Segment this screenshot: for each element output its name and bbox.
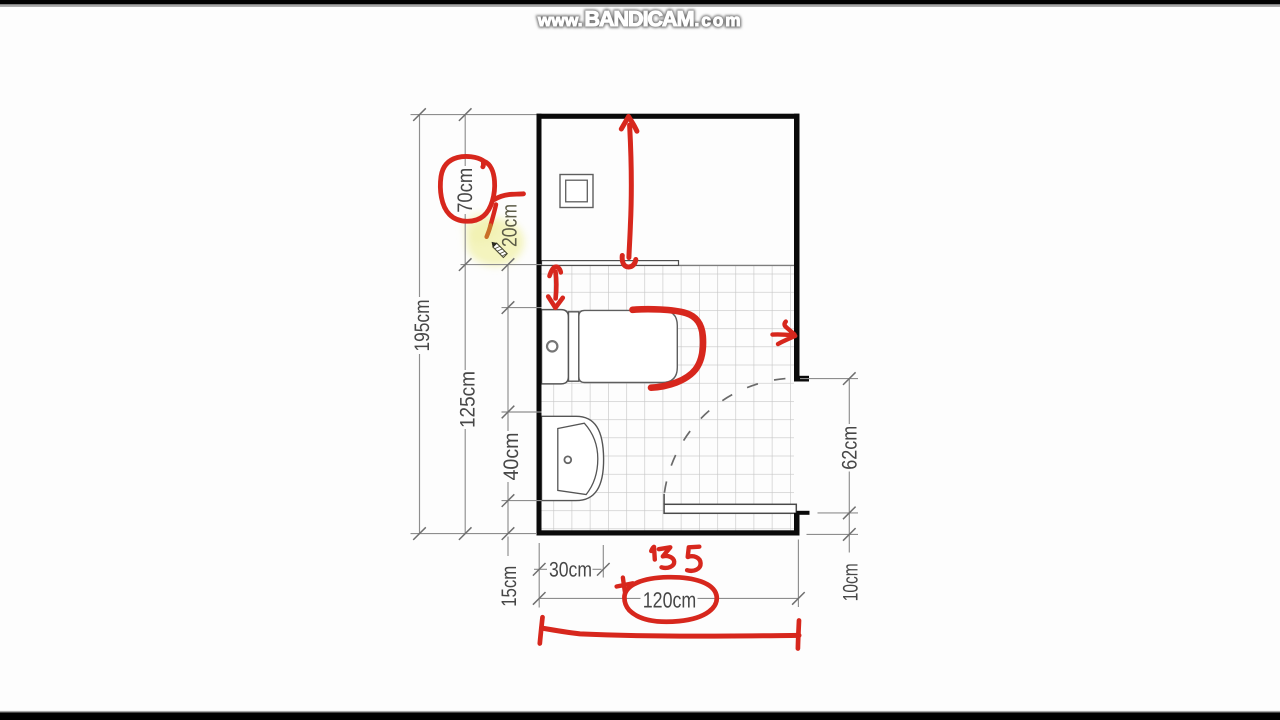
svg-text:70cm: 70cm (454, 168, 477, 213)
svg-text:20cm: 20cm (498, 204, 521, 247)
svg-text:www.: www. (537, 11, 583, 30)
svg-text:BANDICAM: BANDICAM (585, 7, 695, 31)
svg-text:15cm: 15cm (498, 566, 521, 607)
svg-text:40cm: 40cm (500, 433, 523, 481)
svg-text:62cm: 62cm (838, 426, 861, 470)
svg-text:195cm: 195cm (411, 300, 434, 352)
svg-text:10cm: 10cm (839, 563, 862, 601)
svg-text:30cm: 30cm (549, 559, 592, 582)
svg-text:.com: .com (695, 11, 741, 30)
svg-text:120cm: 120cm (643, 587, 697, 612)
svg-text:125cm: 125cm (457, 371, 480, 428)
